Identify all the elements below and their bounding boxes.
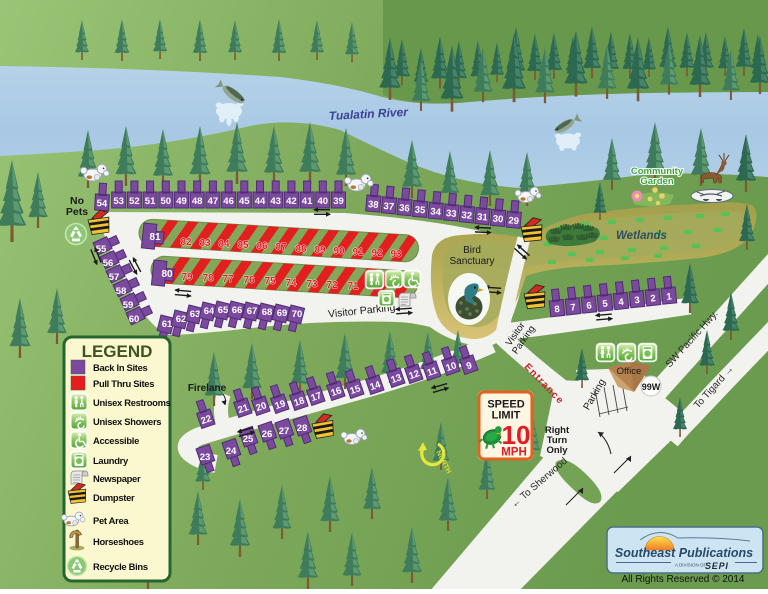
svg-text:Unisex Showers: Unisex Showers bbox=[93, 416, 161, 427]
svg-text:45: 45 bbox=[239, 196, 250, 207]
svg-text:A DIVISION OF: A DIVISION OF bbox=[675, 563, 707, 568]
svg-text:10: 10 bbox=[502, 420, 531, 450]
svg-text:44: 44 bbox=[255, 196, 266, 207]
svg-text:66: 66 bbox=[232, 305, 243, 316]
svg-text:63: 63 bbox=[190, 309, 201, 320]
svg-text:38: 38 bbox=[367, 199, 378, 211]
svg-text:70: 70 bbox=[292, 309, 303, 320]
svg-text:Accessible: Accessible bbox=[93, 435, 139, 446]
svg-text:Back In Sites: Back In Sites bbox=[93, 362, 148, 373]
svg-text:3: 3 bbox=[634, 295, 640, 306]
svg-text:49: 49 bbox=[176, 196, 187, 207]
svg-text:Wetlands: Wetlands bbox=[616, 230, 667, 242]
svg-text:31: 31 bbox=[477, 212, 489, 224]
svg-text:77: 77 bbox=[222, 274, 234, 285]
svg-text:34: 34 bbox=[430, 206, 442, 218]
svg-text:All Rights Reserved © 2014: All Rights Reserved © 2014 bbox=[622, 574, 745, 585]
svg-text:39: 39 bbox=[333, 196, 344, 207]
svg-text:Unisex Restrooms: Unisex Restrooms bbox=[93, 397, 171, 408]
svg-text:46: 46 bbox=[223, 196, 234, 207]
svg-text:83: 83 bbox=[199, 238, 211, 249]
svg-text:SEPI: SEPI bbox=[705, 561, 729, 571]
svg-text:50: 50 bbox=[161, 196, 172, 207]
svg-text:36: 36 bbox=[399, 203, 410, 215]
svg-text:8: 8 bbox=[554, 304, 560, 315]
svg-text:RightTurnOnly: RightTurnOnly bbox=[545, 425, 570, 456]
svg-text:Horseshoes: Horseshoes bbox=[93, 536, 144, 547]
svg-text:40: 40 bbox=[318, 196, 329, 207]
svg-text:58: 58 bbox=[116, 286, 127, 297]
svg-text:79: 79 bbox=[181, 272, 193, 283]
svg-text:73: 73 bbox=[306, 279, 318, 290]
svg-text:84: 84 bbox=[218, 239, 230, 250]
svg-text:59: 59 bbox=[123, 300, 134, 311]
svg-text:92: 92 bbox=[371, 248, 383, 259]
svg-text:48: 48 bbox=[192, 196, 203, 207]
svg-text:30: 30 bbox=[492, 213, 503, 225]
svg-text:Southeast Publications: Southeast Publications bbox=[615, 546, 753, 560]
svg-text:85: 85 bbox=[237, 240, 249, 251]
svg-text:82: 82 bbox=[180, 237, 192, 248]
svg-text:75: 75 bbox=[264, 276, 276, 287]
svg-text:Laundry: Laundry bbox=[93, 455, 129, 466]
svg-text:67: 67 bbox=[247, 306, 258, 317]
svg-text:78: 78 bbox=[202, 273, 214, 284]
svg-text:51: 51 bbox=[145, 196, 156, 207]
svg-text:93: 93 bbox=[390, 249, 402, 260]
svg-text:33: 33 bbox=[445, 208, 456, 220]
svg-text:Pet Area: Pet Area bbox=[93, 515, 129, 526]
svg-text:57: 57 bbox=[109, 272, 120, 283]
svg-text:27: 27 bbox=[279, 426, 290, 437]
svg-text:6: 6 bbox=[586, 300, 592, 311]
svg-text:47: 47 bbox=[208, 196, 219, 207]
svg-text:Office: Office bbox=[617, 366, 642, 377]
svg-text:68: 68 bbox=[262, 307, 273, 318]
svg-text:86: 86 bbox=[256, 241, 268, 252]
svg-text:2: 2 bbox=[650, 293, 656, 304]
svg-text:26: 26 bbox=[262, 429, 273, 440]
svg-text:Garden: Garden bbox=[640, 176, 673, 187]
svg-text:37: 37 bbox=[383, 201, 394, 213]
svg-text:MPH: MPH bbox=[501, 447, 527, 459]
svg-text:Pull Thru Sites: Pull Thru Sites bbox=[93, 378, 154, 389]
svg-text:29: 29 bbox=[508, 215, 519, 227]
svg-text:80: 80 bbox=[161, 269, 173, 280]
svg-text:42: 42 bbox=[286, 196, 297, 207]
svg-text:24: 24 bbox=[226, 446, 237, 457]
svg-text:56: 56 bbox=[103, 258, 114, 269]
svg-text:99W: 99W bbox=[642, 382, 661, 392]
svg-text:35: 35 bbox=[414, 204, 426, 216]
svg-text:60: 60 bbox=[129, 314, 140, 325]
svg-text:72: 72 bbox=[326, 280, 338, 291]
svg-text:53: 53 bbox=[113, 196, 124, 207]
svg-text:81: 81 bbox=[149, 232, 161, 243]
svg-text:Newspaper: Newspaper bbox=[93, 473, 141, 484]
svg-text:7: 7 bbox=[570, 302, 576, 313]
svg-text:62: 62 bbox=[176, 314, 187, 325]
svg-text:71: 71 bbox=[347, 281, 359, 292]
svg-text:Firelane: Firelane bbox=[188, 383, 227, 394]
svg-text:69: 69 bbox=[277, 308, 288, 319]
svg-text:43: 43 bbox=[270, 196, 281, 207]
svg-text:32: 32 bbox=[461, 210, 472, 222]
svg-text:Recycle Bins: Recycle Bins bbox=[93, 561, 148, 572]
svg-text:90: 90 bbox=[333, 246, 345, 257]
svg-text:Dumpster: Dumpster bbox=[93, 492, 135, 503]
svg-text:89: 89 bbox=[314, 245, 326, 256]
svg-text:25: 25 bbox=[243, 434, 254, 445]
svg-text:74: 74 bbox=[285, 278, 297, 289]
svg-text:76: 76 bbox=[243, 275, 255, 286]
svg-text:87: 87 bbox=[275, 242, 287, 253]
svg-text:LEGEND: LEGEND bbox=[82, 342, 153, 361]
svg-text:28: 28 bbox=[297, 423, 308, 434]
svg-text:52: 52 bbox=[129, 196, 140, 207]
svg-text:23: 23 bbox=[200, 452, 211, 463]
svg-text:91: 91 bbox=[352, 247, 364, 258]
svg-text:88: 88 bbox=[295, 244, 307, 255]
svg-text:54: 54 bbox=[96, 198, 108, 210]
svg-text:41: 41 bbox=[302, 196, 313, 207]
